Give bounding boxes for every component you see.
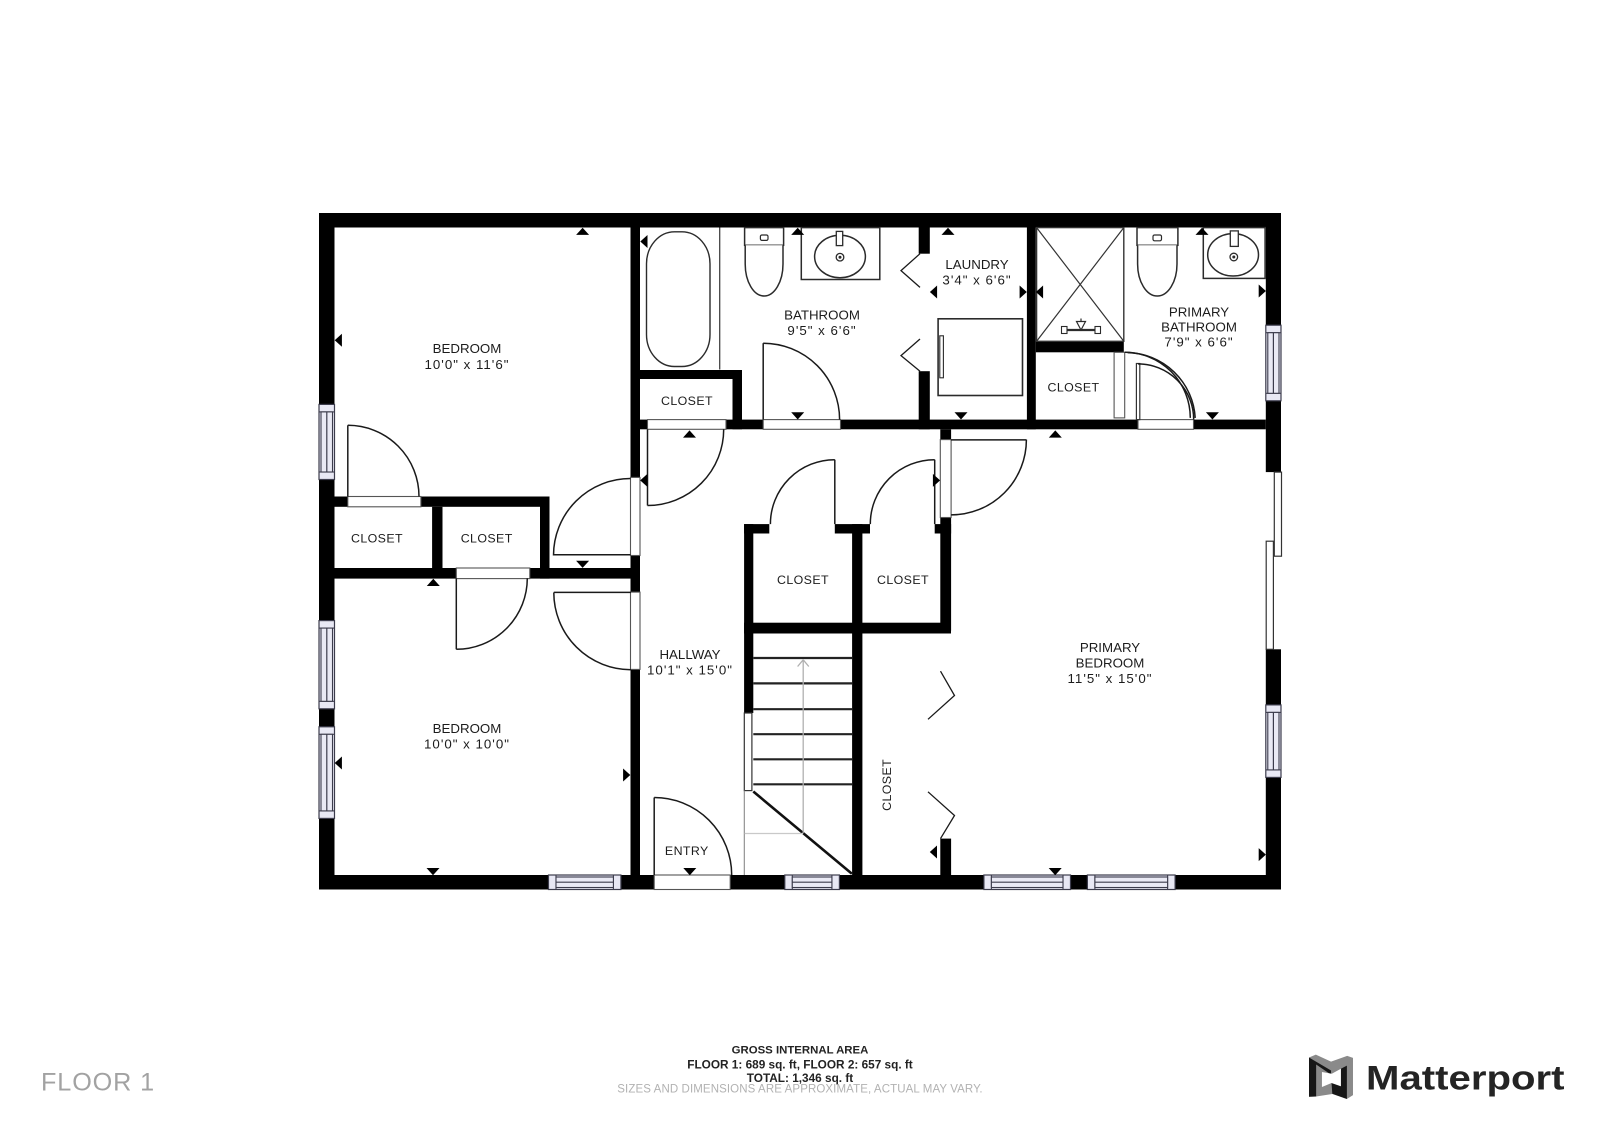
svg-text:BATHROOM: BATHROOM [1161, 319, 1237, 334]
svg-text:FLOOR 1: 689 sq. ft, FLOOR 2:: FLOOR 1: 689 sq. ft, FLOOR 2: 657 sq. ft [687, 1057, 913, 1071]
svg-text:SIZES AND DIMENSIONS ARE APPRO: SIZES AND DIMENSIONS ARE APPROXIMATE, AC… [617, 1083, 982, 1095]
svg-text:BEDROOM: BEDROOM [433, 341, 502, 356]
svg-text:CLOSET: CLOSET [877, 573, 929, 587]
svg-text:LAUNDRY: LAUNDRY [945, 257, 1008, 272]
svg-text:10'0" x 10'0": 10'0" x 10'0" [424, 737, 510, 752]
svg-text:9'5" x 6'6": 9'5" x 6'6" [787, 323, 856, 338]
svg-text:CLOSET: CLOSET [777, 573, 829, 587]
svg-text:CLOSET: CLOSET [1048, 380, 1100, 394]
svg-text:PRIMARY: PRIMARY [1080, 640, 1140, 655]
svg-text:FLOOR 1: FLOOR 1 [41, 1069, 155, 1097]
svg-text:CLOSET: CLOSET [880, 759, 894, 811]
svg-text:PRIMARY: PRIMARY [1169, 304, 1229, 319]
svg-text:GROSS INTERNAL AREA: GROSS INTERNAL AREA [732, 1045, 869, 1057]
svg-text:BEDROOM: BEDROOM [1076, 655, 1145, 670]
svg-text:BEDROOM: BEDROOM [433, 721, 502, 736]
svg-text:BATHROOM: BATHROOM [784, 307, 860, 322]
svg-text:ENTRY: ENTRY [665, 844, 709, 858]
svg-text:11'5" x 15'0": 11'5" x 15'0" [1068, 671, 1153, 686]
svg-text:Matterport: Matterport [1366, 1059, 1565, 1097]
svg-text:CLOSET: CLOSET [461, 531, 513, 545]
svg-text:3'4" x 6'6": 3'4" x 6'6" [942, 273, 1011, 288]
svg-text:10'1" x 15'0": 10'1" x 15'0" [647, 663, 733, 678]
svg-text:HALLWAY: HALLWAY [659, 647, 720, 662]
svg-text:CLOSET: CLOSET [351, 531, 403, 545]
svg-text:10'0" x 11'6": 10'0" x 11'6" [425, 357, 510, 372]
svg-text:7'9" x 6'6": 7'9" x 6'6" [1164, 334, 1233, 349]
svg-text:CLOSET: CLOSET [661, 394, 713, 408]
